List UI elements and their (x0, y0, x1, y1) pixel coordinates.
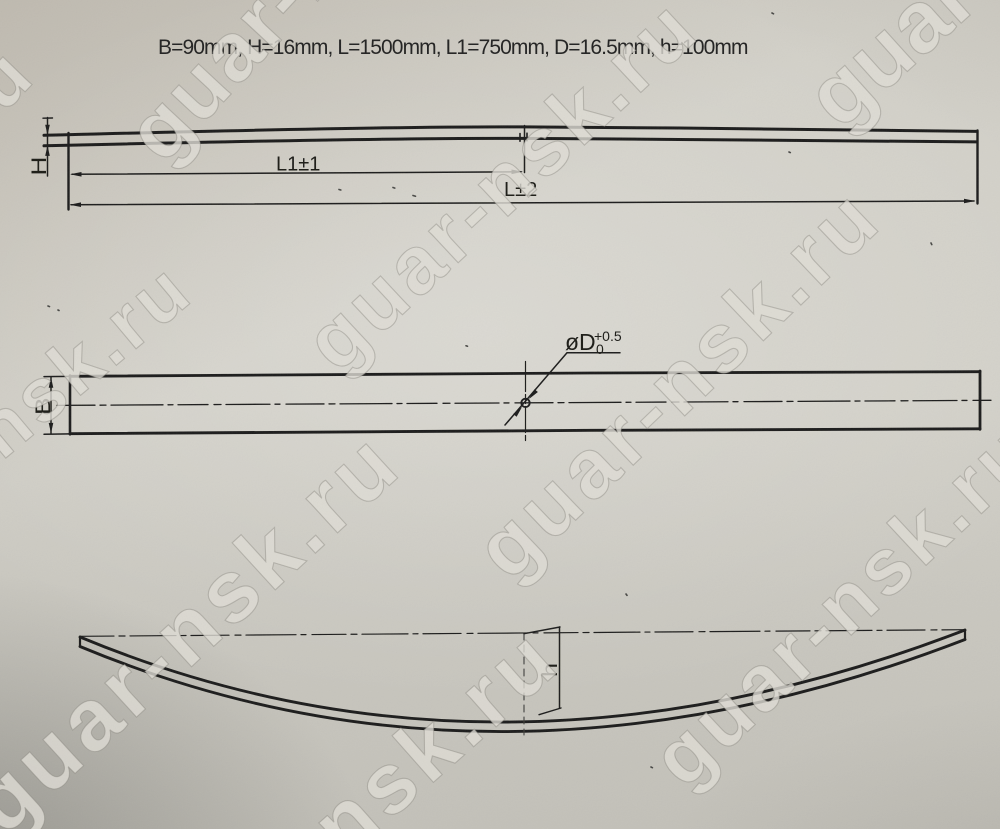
svg-text:H: H (27, 157, 51, 176)
svg-text:L1±1: L1±1 (276, 154, 320, 176)
svg-text:øD: øD (565, 329, 596, 355)
svg-text:0: 0 (596, 341, 604, 357)
